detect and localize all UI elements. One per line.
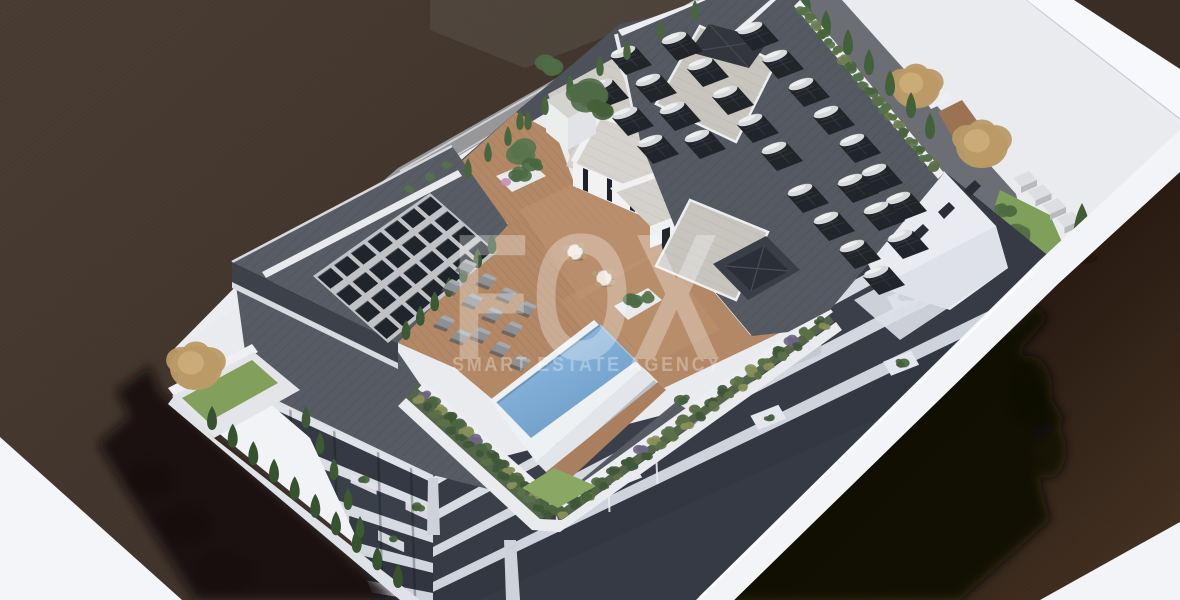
- svg-text:SMART ESTATE AGENCY: SMART ESTATE AGENCY: [452, 354, 722, 376]
